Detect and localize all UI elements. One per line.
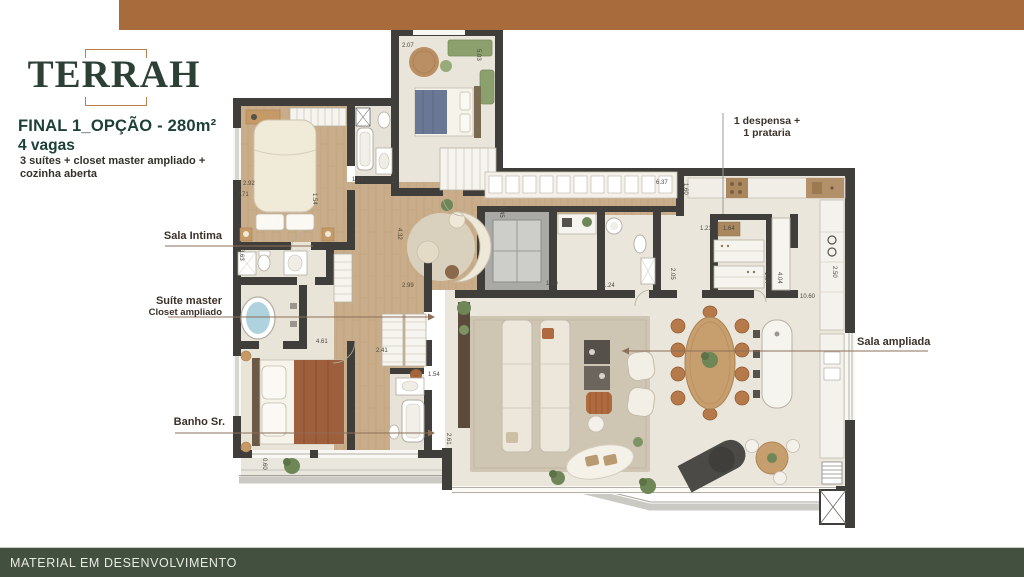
plan-title: FINAL 1_OPÇÃO - 280m² xyxy=(18,117,216,136)
dimension-label: 5.03 xyxy=(475,49,481,61)
dimension-label: 2.99 xyxy=(402,283,414,289)
dimension-label: 4.61 xyxy=(316,339,328,345)
dimension-label: 1.54 xyxy=(311,193,317,205)
label-banho-sr: Banho Sr. xyxy=(148,416,225,428)
label-sala-ampliada: Sala ampliada xyxy=(857,336,947,348)
dimension-label: 1.21 xyxy=(700,226,712,232)
label-despensa-prataria: 1 despensa + 1 prataria xyxy=(724,116,810,139)
dimension-label: 1.60 xyxy=(682,183,688,195)
wardrobe-strip xyxy=(485,172,677,198)
dimension-label: 2.50 xyxy=(831,266,837,278)
footer-bar: MATERIAL EM DESENVOLVIMENTO xyxy=(0,547,1024,577)
dimension-label: 2.71 xyxy=(237,192,249,198)
label-despensa-line1: 1 despensa + xyxy=(724,116,810,128)
dimension-label: 1.24 xyxy=(603,283,615,289)
label-sala-intima: Sala Intima xyxy=(138,230,222,242)
plan-description-line2: cozinha aberta xyxy=(20,168,205,181)
dimension-label: 1.61 xyxy=(352,177,364,183)
dimension-label: 4.32 xyxy=(396,228,402,240)
plan-description-line1: 3 suítes + closet master ampliado + xyxy=(20,155,205,168)
dimension-label: 2.41 xyxy=(376,348,388,354)
dimension-label: 10.60 xyxy=(800,294,816,300)
dimension-label: 0.60 xyxy=(261,458,267,470)
dimension-label: 1.54 xyxy=(428,372,440,378)
label-closet-ampliado: Closet ampliado xyxy=(126,307,222,318)
top-accent-bar xyxy=(119,0,1024,30)
dimension-label: 2.61 xyxy=(445,433,451,445)
dimension-label: 2.07 xyxy=(402,43,414,49)
footer-disclaimer: MATERIAL EM DESENVOLVIMENTO xyxy=(10,556,237,570)
dimension-label: 2.61 xyxy=(390,172,396,184)
dimension-label: 2.05 xyxy=(669,268,675,280)
logo-wordmark: TERRAH xyxy=(14,52,214,98)
elevator xyxy=(485,212,549,290)
label-despensa-line2: 1 prataria xyxy=(724,128,810,140)
logo-bracket-bottom-icon xyxy=(85,97,147,106)
plan-description: 3 suítes + closet master ampliado + cozi… xyxy=(20,155,205,180)
dimension-label: 2.92 xyxy=(243,181,255,187)
master-suite-furniture xyxy=(241,351,344,452)
plan-subtitle: 4 vagas xyxy=(18,137,75,155)
dimension-label: 1.50 xyxy=(546,281,558,287)
page: { "header": { "logo_text": "TERRAH", "ti… xyxy=(0,0,1024,576)
dimension-label: 3.63 xyxy=(238,249,244,261)
label-suite-master: Suíte master xyxy=(138,295,222,307)
dimension-label: 1.45 xyxy=(498,206,504,218)
dimension-label: 6.37 xyxy=(656,180,668,186)
dimension-label: 4.04 xyxy=(776,272,782,284)
dimension-label: 1.64 xyxy=(723,226,735,232)
dimension-label: 1.04 xyxy=(763,272,769,284)
